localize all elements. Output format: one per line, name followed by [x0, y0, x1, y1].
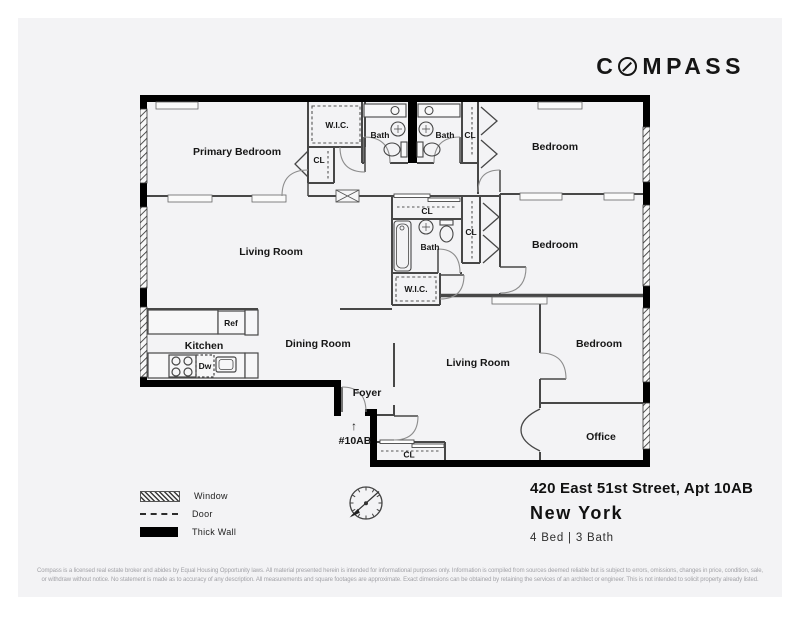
- floor-plan: Primary Bedroom W.I.C. CL Bath Bath CL B…: [140, 95, 650, 467]
- room-label-dining-room: Dining Room: [285, 338, 350, 350]
- legend-label-thick-wall: Thick Wall: [192, 527, 236, 537]
- window-swatch-icon: [140, 491, 180, 502]
- compass-rose-icon: [345, 483, 387, 525]
- toilet-tank: [440, 220, 453, 225]
- disclaimer-line-2: or withdraw without notice. No statement…: [0, 576, 800, 585]
- room-label-cl-mid-top: CL: [421, 206, 432, 216]
- unit-number-label: #10AB: [339, 435, 372, 447]
- beds-baths: 4 Bed | 3 Bath: [530, 532, 753, 544]
- page: CMPASS: [0, 0, 800, 618]
- room-label-cl-top-right: CL: [464, 130, 475, 140]
- door-leaves-layer: [308, 137, 566, 416]
- room-label-foyer: Foyer: [353, 387, 382, 399]
- label-dw: Dw: [199, 361, 212, 371]
- room-label-bath-top-left: Bath: [371, 130, 390, 140]
- thick-wall-swatch-icon: [140, 527, 178, 537]
- toilet: [384, 143, 400, 156]
- room-label-bath-top-right: Bath: [436, 130, 455, 140]
- legend-row-window: Window: [140, 487, 236, 505]
- room-label-kitchen: Kitchen: [185, 340, 224, 352]
- address-city: New York: [530, 503, 753, 524]
- room-label-cl-mid-right: CL: [465, 227, 476, 237]
- shaft-box: [336, 190, 359, 202]
- entry-arrow-icon: ↑: [351, 419, 357, 433]
- legend-label-door: Door: [192, 509, 213, 519]
- room-label-wic-top: W.I.C.: [325, 120, 348, 130]
- legend-row-thick-wall: Thick Wall: [140, 523, 236, 541]
- room-label-office: Office: [586, 431, 616, 443]
- room-label-living-room-lower: Living Room: [446, 357, 510, 369]
- disclaimer: Compass is a licensed real estate broker…: [0, 567, 800, 585]
- room-label-bedroom-bottom-right: Bedroom: [576, 338, 622, 350]
- legend-label-window: Window: [194, 491, 228, 501]
- room-label-bedroom-top-right: Bedroom: [532, 141, 578, 153]
- room-label-bath-mid: Bath: [421, 242, 440, 252]
- legend: Window Door Thick Wall: [140, 487, 236, 541]
- legend-row-door: Door: [140, 505, 236, 523]
- disclaimer-line-1: Compass is a licensed real estate broker…: [0, 567, 800, 576]
- toilet-tank: [417, 142, 423, 157]
- door-swatch-icon: [140, 513, 178, 515]
- toilet: [424, 143, 440, 156]
- room-label-primary-bedroom: Primary Bedroom: [193, 146, 281, 158]
- label-ref: Ref: [224, 318, 238, 328]
- room-labels-layer: Primary Bedroom W.I.C. CL Bath Bath CL B…: [185, 120, 622, 460]
- logo-suffix: MPASS: [642, 53, 745, 80]
- logo-prefix: C: [596, 53, 617, 80]
- vanity: [418, 104, 460, 117]
- room-label-cl-bottom: CL: [403, 450, 414, 460]
- room-label-cl-primary: CL: [313, 155, 324, 165]
- compass-logo: CMPASS: [596, 53, 745, 80]
- room-label-bedroom-mid-right: Bedroom: [532, 239, 578, 251]
- room-label-wic-mid: W.I.C.: [404, 284, 427, 294]
- toilet-tank: [401, 142, 407, 157]
- office-double-door: [521, 409, 540, 451]
- room-label-living-room-upper: Living Room: [239, 246, 303, 258]
- slashed-o-icon: [618, 57, 637, 76]
- vanity: [364, 104, 406, 117]
- address-line: 420 East 51st Street, Apt 10AB: [530, 480, 753, 497]
- address-block: 420 East 51st Street, Apt 10AB New York …: [530, 480, 753, 544]
- toilet: [440, 226, 453, 242]
- windows-layer: [140, 109, 650, 449]
- bifold-doors-layer: [295, 107, 540, 451]
